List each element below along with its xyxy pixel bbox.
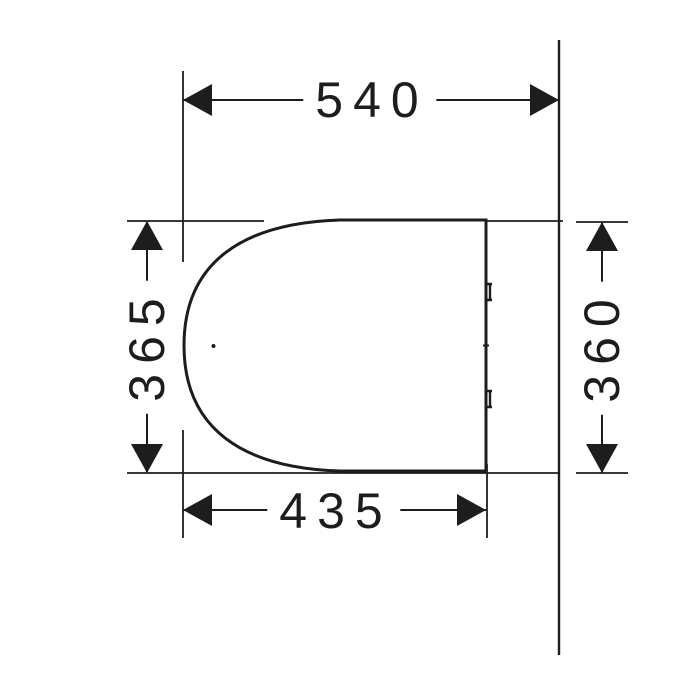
seat-outline	[184, 220, 486, 471]
arrow-540-left-icon	[183, 84, 212, 116]
arrow-435-left-icon	[183, 494, 212, 526]
dimension-top-label: 540	[303, 73, 436, 127]
dimension-bottom-label: 435	[267, 484, 400, 538]
arrow-365-up-icon	[131, 221, 163, 250]
dimension-right-label: 360	[575, 281, 629, 414]
center-point-dot	[212, 344, 216, 348]
dimension-drawing: 540 365 360 435	[0, 0, 700, 700]
arrow-435-right-icon	[457, 494, 486, 526]
arrow-540-right-icon	[530, 84, 559, 116]
arrow-360-down-icon	[586, 444, 618, 473]
arrow-360-up-icon	[586, 222, 618, 251]
arrow-365-down-icon	[131, 444, 163, 473]
dimension-left-label: 365	[120, 280, 174, 413]
